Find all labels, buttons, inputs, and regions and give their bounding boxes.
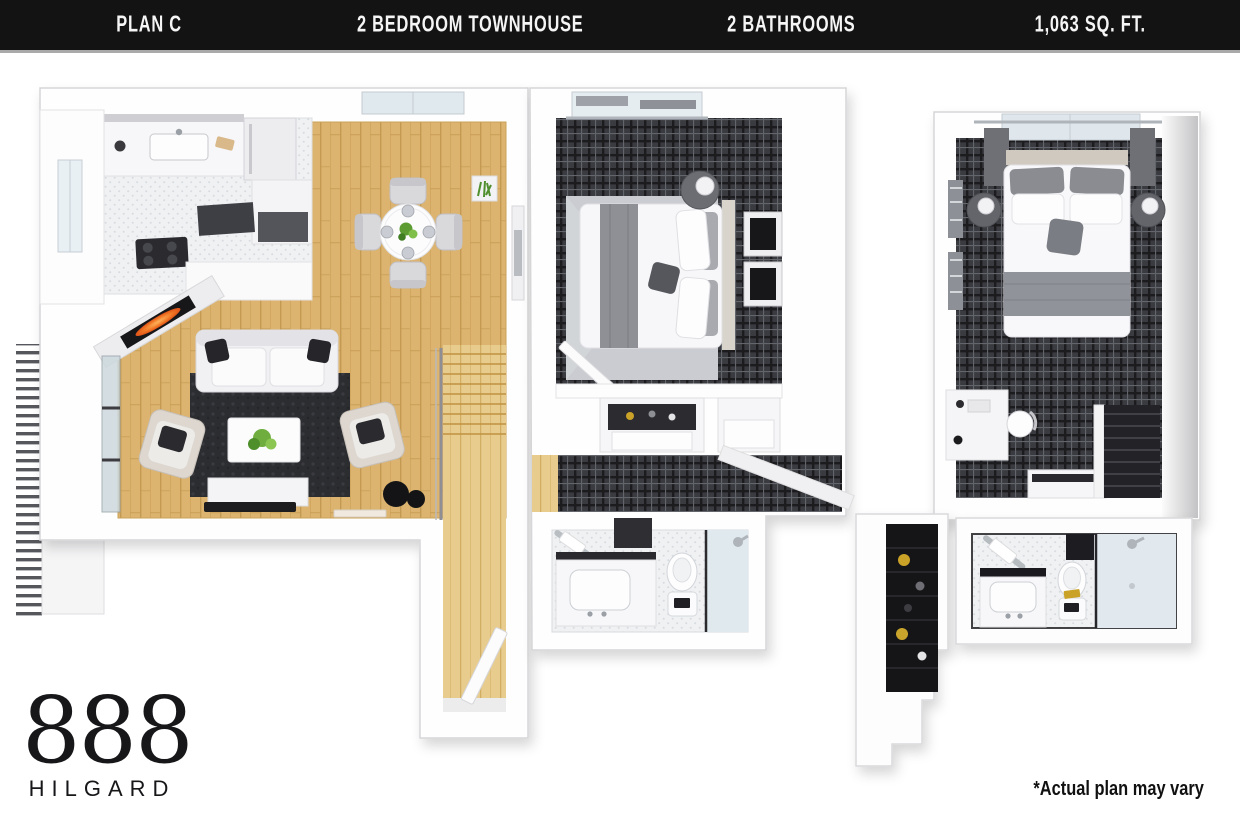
bedroom-1 (556, 92, 782, 392)
bathrooms-label: 2 BATHROOMS (728, 12, 856, 39)
coffee-table (228, 418, 300, 462)
curtain (1130, 128, 1155, 186)
bed1-pillow (675, 209, 710, 271)
bed2-headboard (1006, 150, 1128, 165)
table-lamp (1142, 198, 1158, 214)
kitchen-kettle (115, 141, 126, 152)
kitchen-mat (197, 202, 255, 236)
bed1-pillow (675, 277, 710, 339)
sofa-pillow (306, 338, 331, 363)
upper-hallway (532, 445, 854, 512)
bedroom-2 (946, 114, 1165, 498)
kitchen-upper-cabinets (104, 114, 244, 122)
kitchen-sink (150, 134, 208, 160)
balcony-glass-doors (102, 356, 120, 512)
second-floor-left-section (530, 88, 854, 650)
bathroom2-vanity (980, 568, 1046, 627)
area-label: 1,063 SQ. FT. (1035, 12, 1146, 39)
stove (135, 237, 188, 270)
table-lamp (696, 177, 714, 195)
shower-1 (706, 530, 748, 632)
dining-chair (355, 214, 381, 250)
corner-planter (472, 176, 497, 201)
shower-2 (1096, 534, 1176, 628)
property-logo: 888 HILGARD (22, 688, 182, 802)
bathroom2-mirror (1066, 534, 1094, 560)
walk-in-closet (856, 514, 948, 766)
dishwasher (258, 212, 308, 242)
tv-screen (204, 502, 296, 512)
logo-name: HILGARD (22, 776, 182, 802)
bed-2 (1004, 150, 1130, 337)
bed2-pillow (1070, 194, 1122, 224)
desk-chair (1007, 411, 1033, 437)
sofa-pillow (204, 338, 230, 364)
unit-type-label: 2 BEDROOM TOWNHOUSE (357, 12, 584, 39)
header-divider (0, 50, 1240, 53)
first-floor-plan (16, 88, 528, 738)
toilet (1058, 562, 1086, 620)
dining-chair (390, 178, 426, 204)
bed2-pillow-dark (1009, 167, 1064, 196)
bathroom1-sink (570, 570, 630, 610)
bedroom2-window (1002, 114, 1140, 140)
bathroom1-vanity (556, 552, 656, 626)
bedroom2-right-wall-shading (1162, 116, 1198, 518)
bed1-runner (600, 204, 638, 348)
plan-name-label: PLAN C (117, 12, 183, 39)
kitchen-faucet (176, 129, 182, 135)
second-floor-right-section (856, 112, 1200, 766)
toilet (667, 553, 697, 616)
bed1-headboard (722, 200, 735, 350)
tv-console (204, 478, 308, 512)
dining-chair (436, 214, 462, 250)
balcony-railing (16, 344, 42, 620)
bathroom-1 (552, 518, 748, 632)
dining-chair (390, 262, 426, 288)
bed2-throw-pillow (1046, 218, 1084, 256)
table-lamp (978, 198, 994, 214)
closet-items (898, 554, 910, 566)
pouf (407, 490, 425, 508)
floor-magazine (334, 510, 386, 517)
logo-number: 888 (22, 688, 182, 774)
sofa (196, 330, 338, 392)
header-bar: PLAN C 2 BEDROOM TOWNHOUSE 2 BATHROOMS 1… (0, 0, 1240, 50)
pouf (383, 481, 409, 507)
disclaimer-text: *Actual plan may vary (1034, 778, 1204, 801)
kitchen (40, 110, 312, 304)
bathroom-2 (956, 518, 1192, 644)
shower-drain (1129, 583, 1135, 589)
bed-1 (580, 200, 735, 350)
bed2-runner (1004, 272, 1130, 316)
hallway-wood-strip (532, 455, 558, 512)
staircase-second-floor (1094, 405, 1160, 498)
bed2-pillow-dark (1069, 167, 1124, 196)
bathroom1-mirror (614, 518, 652, 548)
bathroom2-sink (990, 582, 1036, 612)
